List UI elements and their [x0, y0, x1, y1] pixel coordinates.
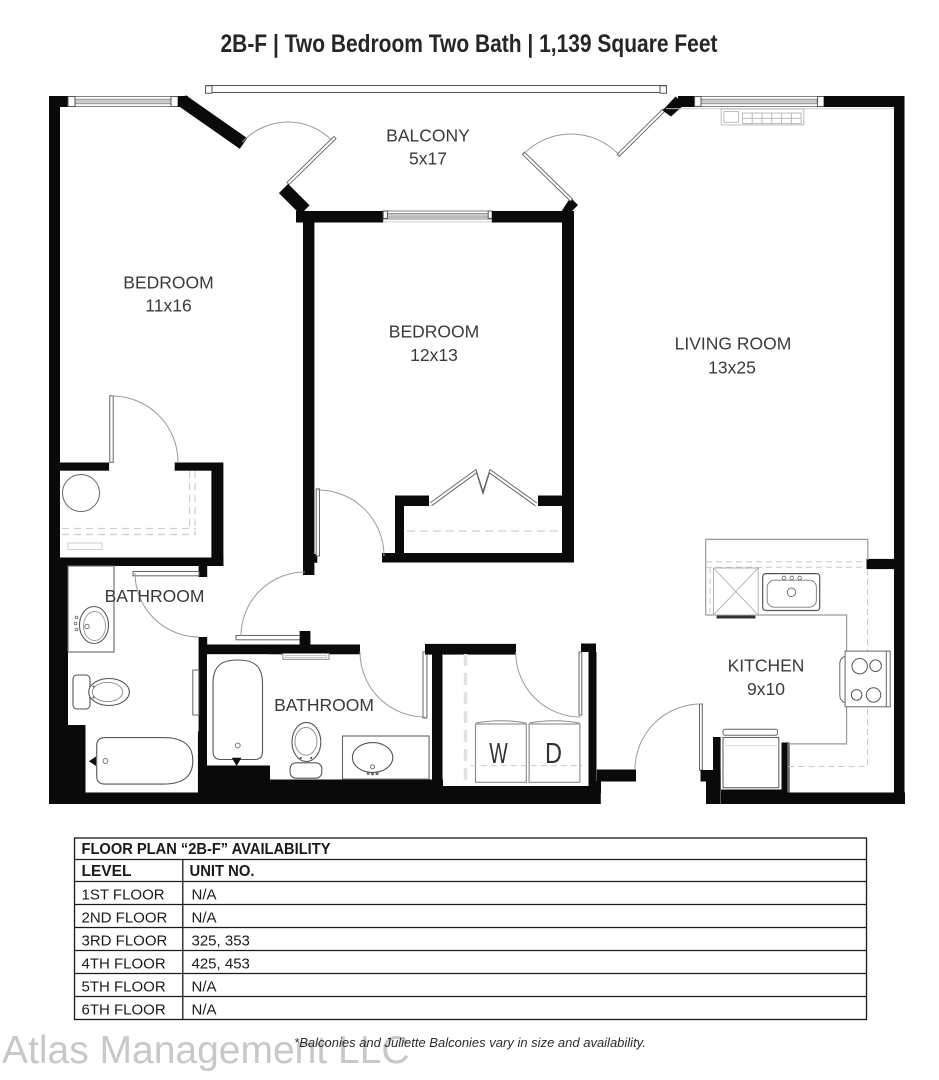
svg-text:BATHROOM: BATHROOM — [274, 695, 374, 715]
svg-text:LIVING ROOM: LIVING ROOM — [675, 334, 792, 354]
svg-text:2B-F | Two Bedroom Two Bath |: 2B-F | Two Bedroom Two Bath | 1,139 Squa… — [221, 30, 719, 58]
svg-text:N/A: N/A — [192, 1002, 217, 1019]
svg-text:D: D — [545, 738, 562, 770]
svg-text:N/A: N/A — [192, 910, 217, 927]
svg-text:9x10: 9x10 — [747, 679, 785, 699]
svg-text:325, 353: 325, 353 — [192, 933, 250, 950]
svg-text:12x13: 12x13 — [410, 345, 458, 365]
svg-text:FLOOR PLAN “2B-F” AVAILABILITY: FLOOR PLAN “2B-F” AVAILABILITY — [82, 841, 332, 858]
svg-text:BEDROOM: BEDROOM — [123, 273, 213, 293]
svg-text:6TH FLOOR: 6TH FLOOR — [82, 1002, 166, 1019]
svg-text:BEDROOM: BEDROOM — [389, 322, 479, 342]
svg-text:N/A: N/A — [192, 887, 217, 904]
svg-text:UNIT NO.: UNIT NO. — [190, 863, 255, 880]
svg-text:N/A: N/A — [192, 979, 217, 996]
svg-text:KITCHEN: KITCHEN — [728, 656, 805, 676]
svg-text:4TH FLOOR: 4TH FLOOR — [82, 956, 166, 973]
svg-text:LEVEL: LEVEL — [82, 863, 132, 880]
svg-text:BALCONY: BALCONY — [386, 126, 470, 146]
svg-text:*Balconies and Juliette Balcon: *Balconies and Juliette Balconies vary i… — [294, 1035, 646, 1050]
svg-text:11x16: 11x16 — [145, 296, 191, 316]
svg-text:425, 453: 425, 453 — [192, 956, 250, 973]
svg-text:2ND FLOOR: 2ND FLOOR — [82, 910, 168, 927]
svg-text:13x25: 13x25 — [708, 358, 756, 378]
svg-text:3RD FLOOR: 3RD FLOOR — [82, 933, 168, 950]
svg-text:1ST FLOOR: 1ST FLOOR — [82, 887, 165, 904]
svg-text:W: W — [489, 738, 508, 770]
svg-text:5TH FLOOR: 5TH FLOOR — [82, 979, 166, 996]
svg-text:BATHROOM: BATHROOM — [105, 586, 205, 606]
svg-text:5x17: 5x17 — [409, 149, 447, 169]
